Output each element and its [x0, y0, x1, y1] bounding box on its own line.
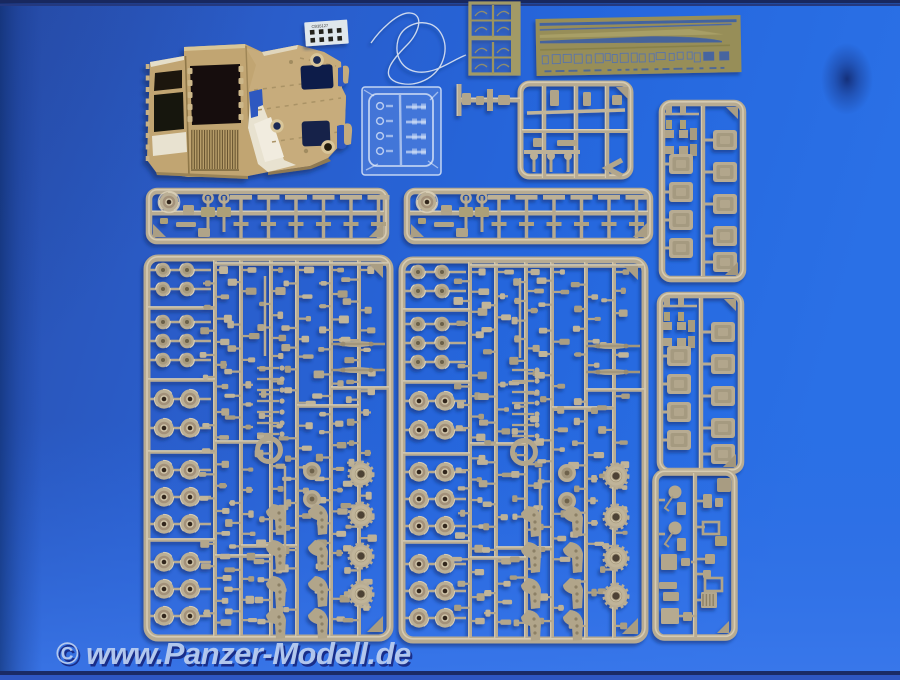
svg-text:© www.Panzer-Modell.de: © www.Panzer-Modell.de: [56, 636, 411, 671]
